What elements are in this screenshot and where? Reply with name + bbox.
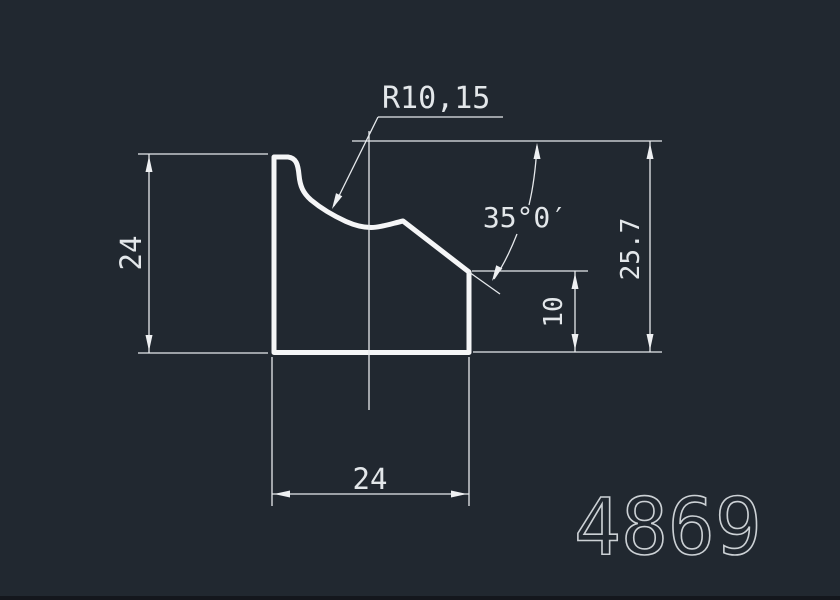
step-height-dimension-label: 10 — [539, 296, 569, 327]
right-height-dimension-label: 25.7 — [616, 218, 646, 281]
bottom-width-dimension-label: 24 — [353, 462, 388, 496]
bottom-edge-strip — [0, 596, 840, 600]
radius-dimension-label: R10,15 — [382, 81, 490, 116]
left-height-dimension-label: 24 — [114, 236, 148, 271]
angle-dimension-label: 35°0′ — [483, 201, 567, 234]
part-number-label: 4869 — [574, 483, 762, 573]
cad-drawing-canvas: R10,15 35°0′ 24 25.7 10 24 4869 — [0, 0, 840, 600]
cad-drawing-viewport: R10,15 35°0′ 24 25.7 10 24 4869 — [0, 0, 840, 600]
